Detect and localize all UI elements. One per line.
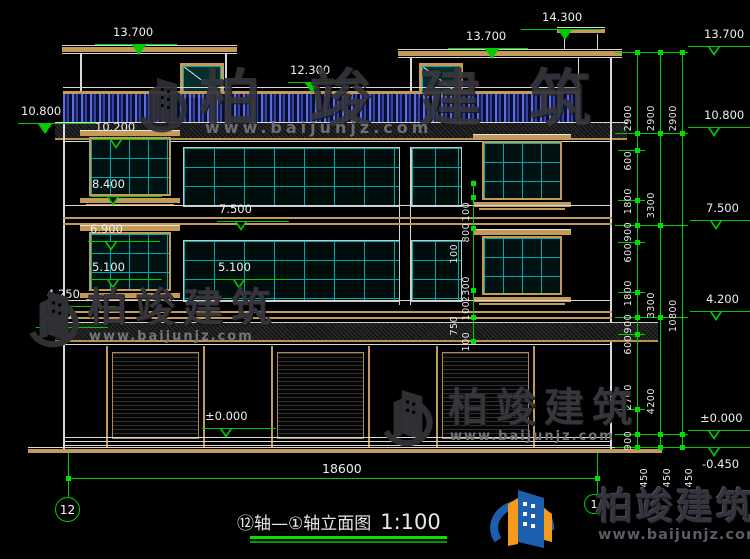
roof-slab-line bbox=[62, 45, 237, 46]
chimney-wall bbox=[597, 34, 598, 49]
dim-tick bbox=[595, 476, 600, 481]
wall-post bbox=[271, 346, 273, 448]
brand-building-icon bbox=[378, 386, 438, 452]
marker-triangle bbox=[235, 222, 247, 231]
marker-triangle bbox=[485, 49, 499, 59]
dim-tick bbox=[680, 131, 685, 136]
watermark-site: www.baijunjz.com bbox=[205, 120, 432, 136]
dim-value: 800 bbox=[462, 223, 472, 243]
elevation-label: 10.800 bbox=[704, 110, 744, 122]
title-underline bbox=[250, 541, 447, 543]
dim-tick bbox=[658, 445, 663, 450]
dim-value: 900 bbox=[624, 222, 634, 242]
marker-triangle bbox=[708, 448, 720, 457]
curtain-window-3f-right bbox=[411, 147, 462, 207]
marker-triangle bbox=[710, 221, 722, 230]
dim-value: 18600 bbox=[322, 463, 362, 476]
elevation-label: 13.700 bbox=[113, 27, 153, 39]
dim-tick bbox=[658, 223, 663, 228]
marker-line bbox=[93, 139, 165, 140]
dim-value: 3300 bbox=[647, 192, 657, 218]
dim-tick bbox=[680, 445, 685, 450]
dim-value: 600 bbox=[624, 243, 634, 263]
marker-triangle bbox=[708, 47, 720, 56]
floor-line bbox=[63, 205, 612, 206]
wall-post bbox=[368, 346, 370, 448]
chimney-cap-line bbox=[557, 27, 605, 28]
dim-value: 3300 bbox=[647, 292, 657, 318]
dim-tick bbox=[658, 315, 663, 320]
marker-triangle bbox=[220, 429, 232, 438]
dim-value: 750 bbox=[450, 316, 460, 336]
elevation-label: 13.700 bbox=[466, 31, 506, 43]
brand-logo-icon bbox=[488, 486, 562, 554]
marker-triangle bbox=[110, 140, 122, 149]
dim-chain-line bbox=[660, 52, 661, 447]
window-glass bbox=[482, 236, 562, 295]
elevation-label: 10.800 bbox=[21, 106, 61, 118]
roof-slab-line bbox=[62, 53, 237, 54]
axis-number: 12 bbox=[60, 503, 75, 517]
title-underline bbox=[250, 536, 447, 539]
marker-line bbox=[18, 123, 96, 124]
dim-value: 900 bbox=[624, 314, 634, 334]
elevation-drawing-canvas: 13.700 12.300 13.700 14.300 10.800 10.20… bbox=[0, 0, 750, 559]
wall-post bbox=[203, 346, 205, 448]
drawing-title: ⑫轴—①轴立面图1:100 bbox=[237, 509, 441, 534]
dim-tick bbox=[635, 198, 640, 203]
window-sill bbox=[80, 198, 180, 203]
marker-triangle bbox=[708, 431, 720, 440]
watermark-brand: 柏竣建筑 bbox=[87, 288, 279, 328]
marker-line bbox=[217, 221, 289, 222]
marker-triangle bbox=[107, 197, 119, 206]
dim-tick bbox=[471, 288, 476, 293]
dim-tick bbox=[635, 148, 640, 153]
dim-tick bbox=[635, 332, 640, 337]
window-sill bbox=[479, 208, 565, 210]
dim-tick bbox=[635, 290, 640, 295]
ext-line bbox=[615, 52, 688, 53]
dim-tick bbox=[471, 226, 476, 231]
elevation-label: 13.700 bbox=[704, 29, 744, 41]
marker-triangle bbox=[558, 30, 572, 40]
roof-slab-line bbox=[398, 49, 622, 50]
marker-line bbox=[90, 279, 162, 280]
dim-tick bbox=[471, 339, 476, 344]
elevation-label: 14.300 bbox=[542, 12, 582, 24]
dim-tick bbox=[635, 445, 640, 450]
dim-value: 2300 bbox=[462, 276, 472, 302]
elevation-label: 10.200 bbox=[95, 122, 135, 134]
dim-value: 100 bbox=[462, 301, 472, 321]
marker-triangle bbox=[132, 45, 146, 55]
dim-tick bbox=[658, 432, 663, 437]
dim-value: 600 bbox=[624, 151, 634, 171]
dim-tick bbox=[635, 50, 640, 55]
dim-value: 1800 bbox=[624, 280, 634, 306]
watermark-site: www.baijunjz.com bbox=[89, 330, 254, 343]
window-glass bbox=[482, 141, 562, 200]
dim-value: 900 bbox=[624, 431, 634, 451]
dim-line bbox=[68, 478, 597, 479]
marker-line bbox=[88, 241, 160, 242]
dim-value: 2900 bbox=[669, 105, 679, 131]
dim-value: 100 bbox=[450, 244, 460, 264]
ext-line bbox=[68, 453, 69, 497]
marker-line bbox=[216, 279, 288, 280]
dim-tick bbox=[471, 315, 476, 320]
roof-slab-line bbox=[398, 57, 622, 58]
ground-line bbox=[63, 445, 612, 446]
dim-value: 2900 bbox=[647, 105, 657, 131]
roof-slab bbox=[398, 51, 622, 56]
brand-site: www.baijunjz.com bbox=[598, 528, 750, 543]
dim-value: 100 bbox=[462, 332, 472, 352]
elevation-label: 6.900 bbox=[90, 224, 123, 236]
elevation-label: 5.100 bbox=[92, 262, 125, 274]
dim-tick bbox=[658, 50, 663, 55]
floor-slab bbox=[63, 217, 612, 219]
curtain-window-3f-left bbox=[183, 147, 400, 207]
roller-shutter-door bbox=[277, 352, 364, 439]
elevation-label: ±0.000 bbox=[205, 411, 248, 423]
roof-slab bbox=[62, 47, 237, 52]
elevation-label: 7.500 bbox=[219, 204, 252, 216]
marker-triangle bbox=[710, 312, 722, 321]
marker-triangle bbox=[708, 128, 720, 137]
watermark-brand: 柏竣建筑 bbox=[448, 388, 640, 428]
roller-shutter-door bbox=[112, 352, 199, 439]
wall-post bbox=[106, 346, 108, 448]
dim-tick bbox=[658, 131, 663, 136]
ground-line bbox=[28, 447, 662, 448]
dim-tick bbox=[66, 476, 71, 481]
elevation-label: 5.100 bbox=[218, 262, 251, 274]
framed-window-3f-right bbox=[477, 132, 567, 210]
dim-tick bbox=[635, 315, 640, 320]
elevation-label: 8.400 bbox=[92, 179, 125, 191]
dim-tick bbox=[680, 50, 685, 55]
dim-value: 100 bbox=[462, 202, 472, 222]
watermark-site: www.baijunjz.com bbox=[450, 430, 615, 443]
marker-triangle bbox=[105, 242, 117, 251]
title-text: ⑫轴—①轴立面图 bbox=[237, 514, 371, 534]
elevation-label: ±0.000 bbox=[700, 413, 743, 425]
ground-base bbox=[28, 449, 662, 453]
dim-value: 10800 bbox=[669, 299, 679, 332]
dim-value: 600 bbox=[624, 335, 634, 355]
floor-slab bbox=[63, 223, 612, 225]
brand-building-icon bbox=[25, 286, 83, 354]
title-scale: 1:100 bbox=[380, 510, 441, 534]
brand-name: 柏竣建筑 bbox=[596, 488, 750, 525]
marker-line bbox=[202, 428, 276, 429]
elevation-label: 7.500 bbox=[706, 203, 739, 215]
dim-tick bbox=[635, 223, 640, 228]
dim-value: 1800 bbox=[624, 188, 634, 214]
framed-window-2f-right bbox=[477, 227, 567, 305]
dim-tick bbox=[471, 195, 476, 200]
window-head bbox=[473, 229, 571, 235]
canopy-underline bbox=[63, 344, 612, 345]
penthouse-wall bbox=[80, 54, 82, 91]
axis-bubble-12: 12 bbox=[55, 497, 80, 522]
marker-triangle bbox=[38, 124, 52, 134]
dim-tick bbox=[635, 432, 640, 437]
dim-tick bbox=[680, 432, 685, 437]
brand-building-icon bbox=[135, 74, 191, 138]
dim-tick bbox=[471, 181, 476, 186]
elevation-label: 4.200 bbox=[706, 294, 739, 306]
dim-tick bbox=[635, 240, 640, 245]
dim-value: 4200 bbox=[647, 388, 657, 414]
elevation-label: -0.450 bbox=[702, 459, 739, 471]
marker-line bbox=[90, 196, 162, 197]
dim-chain-line bbox=[682, 52, 683, 447]
window-sill bbox=[479, 303, 565, 305]
